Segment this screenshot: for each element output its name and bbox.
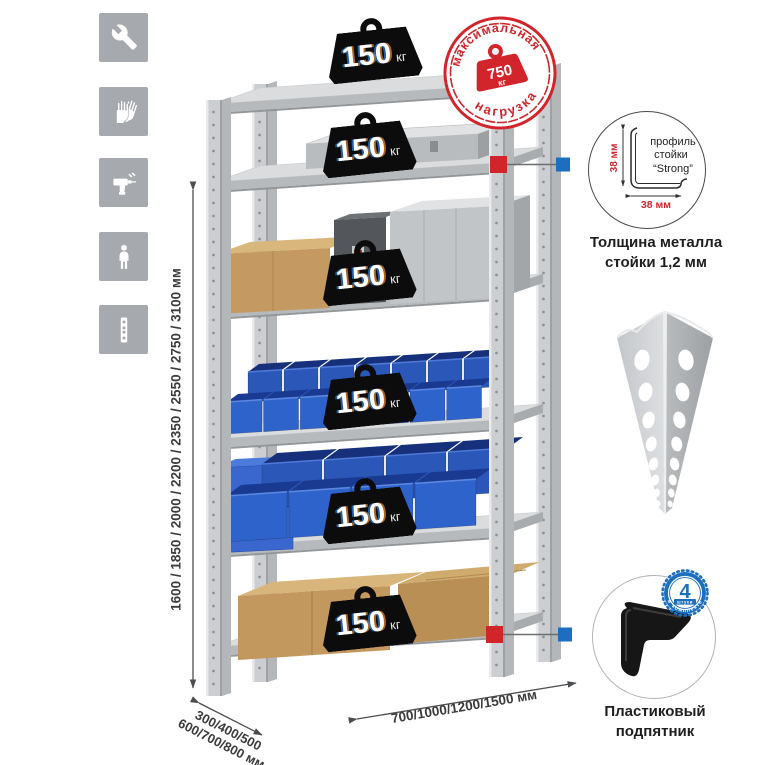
load-value: 150 <box>334 259 387 297</box>
load-value: 150 <box>334 497 387 535</box>
weight-icon: 150кг <box>318 485 419 545</box>
load-value: 150 <box>334 131 387 169</box>
load-unit: кг <box>389 143 401 159</box>
load-unit: кг <box>389 509 401 525</box>
shelf-load-badge-2: 150кг <box>318 119 419 179</box>
profile-callout-red-square <box>490 156 507 173</box>
weight-icon: 150кг <box>318 119 419 179</box>
weight-icon: 150кг <box>318 371 419 431</box>
shelf-load-badge-3: 150кг <box>318 247 419 307</box>
load-value: 150 <box>340 37 393 75</box>
load-unit: кг <box>389 395 401 411</box>
load-unit: кг <box>395 49 407 65</box>
load-unit: кг <box>389 271 401 287</box>
foot-callout-blue-square <box>558 628 572 642</box>
width-dimension-line <box>357 683 576 719</box>
count-badge: 4 штуки в комплекте <box>660 568 710 618</box>
load-unit: кг <box>389 617 401 633</box>
shelf-load-badge-6: 150кг <box>318 593 419 653</box>
load-value: 150 <box>334 605 387 643</box>
foot-callout-red-square <box>486 626 503 643</box>
profile-callout-blue-square <box>556 158 570 172</box>
shelf-load-badge-4: 150кг <box>318 371 419 431</box>
shelf-load-badge-5: 150кг <box>318 485 419 545</box>
product-infographic: 1600 / 1850 / 2000 / 2200 / 2350 / 2550 … <box>0 0 765 765</box>
load-value: 150 <box>334 383 387 421</box>
weight-icon: 150кг <box>318 593 419 653</box>
weight-icon: 150кг <box>318 247 419 307</box>
depth-dimension-line <box>199 703 262 735</box>
shelf-load-badge-1: 150кг <box>324 25 425 85</box>
max-load-stamp: максимальная нагрузка 750 кг <box>430 3 570 143</box>
weight-icon: 150кг <box>324 25 425 85</box>
count-badge-small: штуки <box>677 599 693 604</box>
